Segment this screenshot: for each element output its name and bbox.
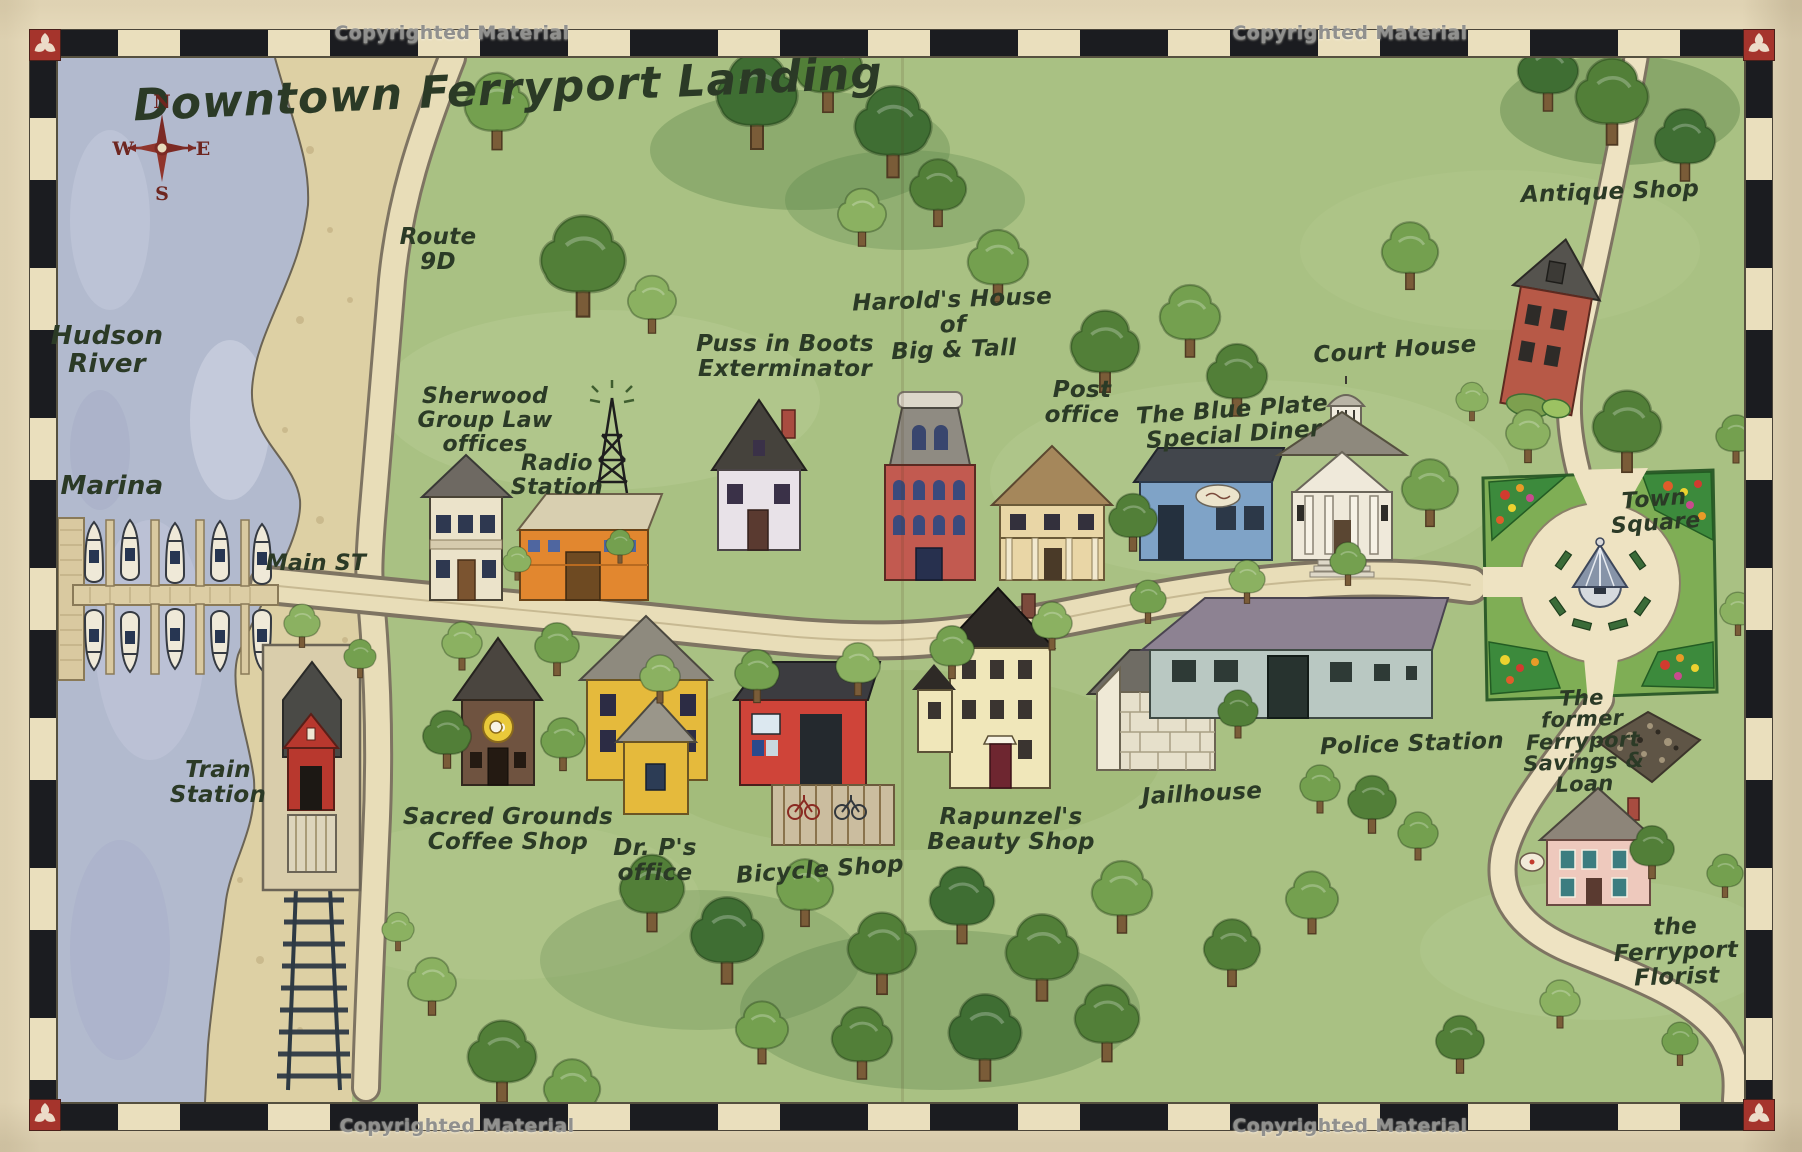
marina-docks xyxy=(58,518,278,680)
border-corner-pinwheel-icon xyxy=(30,30,60,60)
label-main-st: Main ST xyxy=(266,552,367,576)
label-train-station: Train Station xyxy=(170,758,266,808)
compass-s: S xyxy=(155,183,169,205)
label-puss-in-boots: Puss in Boots Exterminator xyxy=(696,332,874,382)
police-station-building xyxy=(1142,598,1448,718)
compass-e: E xyxy=(196,138,210,160)
label-sacred-grounds: Sacred Grounds Coffee Shop xyxy=(403,805,613,855)
border-band-left xyxy=(30,30,58,1130)
train-station-building xyxy=(263,645,360,890)
label-savings-loan: The former Ferryport Savings & Loan xyxy=(1521,686,1646,797)
sacred-grounds-coffee-shop-building xyxy=(454,638,542,785)
copyright-watermark: Copyrighted Material xyxy=(1232,22,1467,44)
border-corner-pinwheel-icon xyxy=(30,1100,60,1130)
copyright-watermark: Copyrighted Material xyxy=(339,1115,574,1137)
label-hudson-river: Hudson River xyxy=(51,322,164,378)
compass-n: N xyxy=(153,91,170,113)
border-band-right xyxy=(1744,30,1772,1130)
label-rapunzels: Rapunzel's Beauty Shop xyxy=(927,805,1095,855)
map-page: Downtown Ferryport Landing Copyrighted M… xyxy=(0,0,1802,1152)
label-radio-station: Radio Station xyxy=(511,452,603,500)
compass-w: W xyxy=(112,138,133,160)
label-route-9d: Route 9D xyxy=(400,225,477,275)
label-florist: the Ferryport Florist xyxy=(1612,913,1741,992)
label-sherwood-law: Sherwood Group Law offices xyxy=(418,385,553,456)
border-corner-pinwheel-icon xyxy=(1744,1100,1774,1130)
border-corner-pinwheel-icon xyxy=(1744,30,1774,60)
border-band-bottom xyxy=(30,1102,1772,1130)
label-dr-p-office: Dr. P's office xyxy=(613,836,697,886)
bike-patio xyxy=(772,785,894,845)
border-band-top xyxy=(30,30,1772,58)
label-marina: Marina xyxy=(60,472,163,500)
copyright-watermark: Copyrighted Material xyxy=(334,22,569,44)
label-harolds: Harold's House of Big & Tall xyxy=(852,285,1054,366)
page-crease xyxy=(901,58,904,1102)
copyright-watermark: Copyrighted Material xyxy=(1232,1115,1467,1137)
label-post-office: Post office xyxy=(1045,378,1120,428)
blue-plate-diner-building xyxy=(1134,448,1284,560)
harolds-big-and-tall-building xyxy=(885,392,975,580)
